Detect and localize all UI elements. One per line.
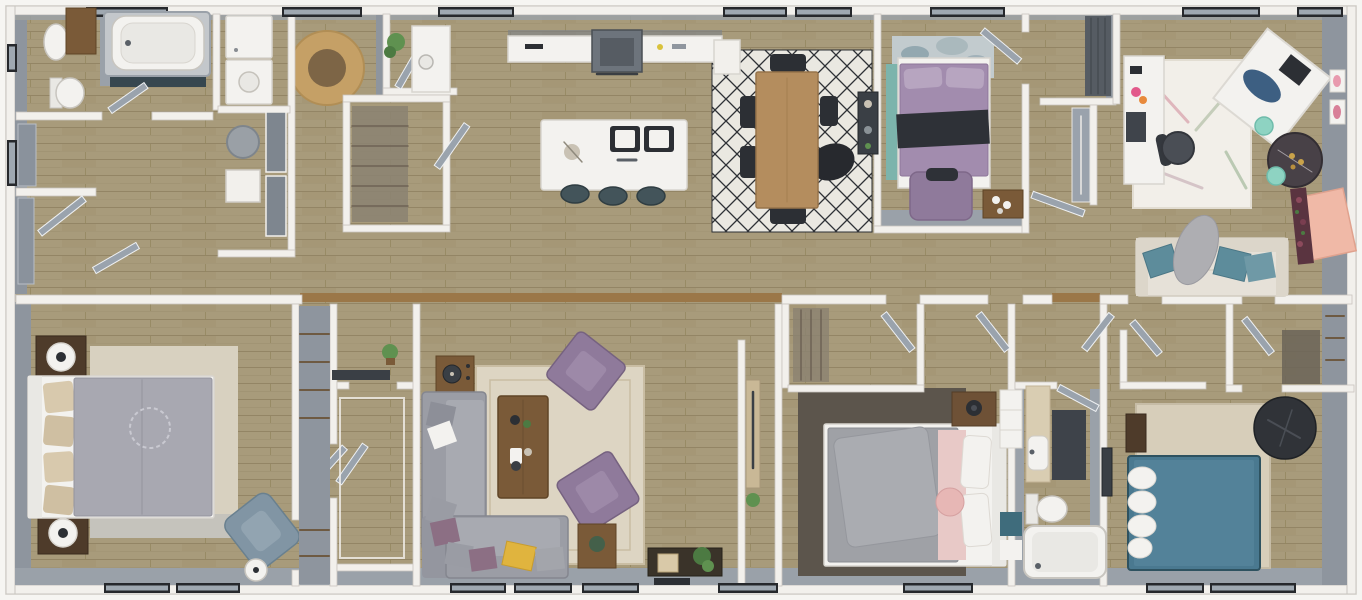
console-decor-1 bbox=[864, 100, 872, 108]
bed4-pillow-1 bbox=[1128, 467, 1156, 489]
bath2-toilet-bowl bbox=[1037, 496, 1067, 522]
toilet-bowl bbox=[56, 78, 84, 108]
primary-headboard bbox=[28, 376, 42, 518]
office-sofa-arm-right bbox=[1276, 238, 1288, 296]
counter-item-gray bbox=[672, 44, 686, 49]
interior-wall-27 bbox=[1275, 295, 1352, 304]
washer-controls bbox=[234, 48, 238, 52]
bean-bag bbox=[1254, 397, 1316, 459]
teal-towels bbox=[1000, 512, 1022, 536]
window-glass-bottom-2 bbox=[178, 586, 238, 591]
bathroom2-mat bbox=[1052, 410, 1086, 480]
interior-wall-25 bbox=[1100, 295, 1128, 304]
interior-wall-37 bbox=[775, 304, 782, 586]
floor-plan-svg bbox=[0, 0, 1362, 600]
interior-wall-35 bbox=[413, 304, 420, 586]
primary-pillow-3 bbox=[43, 451, 75, 483]
bed3-lamp-center bbox=[971, 405, 977, 411]
interior-wall-40 bbox=[788, 385, 924, 392]
media-plant-2 bbox=[702, 560, 714, 572]
garland-bloom-2 bbox=[1300, 219, 1306, 225]
bed2-side-table bbox=[983, 190, 1023, 218]
end-cabinet bbox=[714, 40, 740, 74]
coffee-table-decor-1 bbox=[510, 415, 520, 425]
mint-pouf-1 bbox=[1255, 117, 1273, 135]
interior-wall-34 bbox=[337, 564, 420, 571]
window-glass-bottom-6 bbox=[720, 586, 776, 591]
bed4-pillow-3 bbox=[1128, 515, 1156, 537]
sofa-teal-pillow-3 bbox=[1244, 252, 1276, 282]
garland-leaf-1 bbox=[1295, 210, 1299, 214]
window-glass-bottom-3 bbox=[452, 586, 504, 591]
interior-wall-12 bbox=[343, 102, 350, 225]
bedroom2-rug-blotch-2 bbox=[936, 37, 968, 55]
desk-item-dark bbox=[1130, 66, 1142, 74]
interior-wall-2 bbox=[16, 112, 102, 120]
interior-wall-1 bbox=[213, 14, 220, 110]
white-towels bbox=[1000, 540, 1022, 560]
marriage-line bbox=[300, 293, 782, 302]
turntable-center bbox=[450, 372, 454, 376]
interior-wall-4 bbox=[16, 188, 96, 196]
lamp-top-center bbox=[56, 352, 66, 362]
bed2-table-dish-2 bbox=[1003, 201, 1011, 209]
bar-stool-2 bbox=[599, 187, 627, 205]
primary-closet-shelves bbox=[299, 306, 330, 584]
garland-leaf-2 bbox=[1301, 231, 1305, 235]
interior-wall-3 bbox=[152, 112, 213, 120]
coffee-table-plant bbox=[523, 420, 531, 428]
console-plant bbox=[865, 143, 871, 149]
hallway-plant bbox=[746, 493, 760, 507]
bath2-tub-faucet bbox=[1035, 563, 1041, 569]
interior-wall-31 bbox=[330, 498, 337, 586]
window-glass-top-6 bbox=[932, 10, 1003, 15]
vanity-cabinet bbox=[66, 8, 96, 54]
dryer-door bbox=[239, 72, 259, 92]
window-glass-top-4 bbox=[725, 10, 785, 15]
counter-item-yellow bbox=[657, 44, 663, 50]
table-gold-dot-3 bbox=[1291, 165, 1296, 170]
bed2-teal-runner bbox=[886, 64, 898, 180]
bath2-faucet bbox=[1030, 450, 1035, 455]
louver-door-2 bbox=[266, 176, 286, 236]
interior-wall-47 bbox=[1226, 385, 1242, 392]
floor-plan bbox=[0, 0, 1362, 600]
bed4-nightstand bbox=[1126, 414, 1146, 452]
desk-item-orange bbox=[1139, 96, 1147, 104]
linen-tower bbox=[1000, 390, 1022, 448]
bath2-tub-basin bbox=[1032, 532, 1098, 572]
lamp-bottom-center bbox=[58, 528, 68, 538]
interior-wall-19 bbox=[1090, 105, 1097, 205]
bed2-pillow-1 bbox=[903, 67, 942, 90]
bed4-closet-interior bbox=[1282, 330, 1320, 384]
interior-wall-29 bbox=[292, 570, 299, 586]
interior-wall-18 bbox=[1040, 98, 1116, 105]
bed2-pillow-2 bbox=[946, 67, 985, 89]
interior-wall-16 bbox=[1022, 14, 1029, 32]
window-glass-bottom-1 bbox=[106, 586, 168, 591]
table-gold-dot-1 bbox=[1289, 153, 1295, 159]
tub-faucet bbox=[125, 40, 131, 46]
interior-wall-10 bbox=[343, 95, 450, 102]
wall-art-2-print bbox=[1333, 105, 1341, 119]
bed3-round-pink-pillow bbox=[936, 488, 964, 516]
console-knob-1 bbox=[466, 364, 470, 368]
bar-stool-1 bbox=[561, 185, 589, 203]
media-bench bbox=[654, 578, 690, 585]
interior-wall-23 bbox=[920, 295, 988, 304]
mint-pouf-2 bbox=[1267, 167, 1285, 185]
bed3-big-gray-pillow bbox=[833, 426, 942, 548]
primary-pillow-4 bbox=[43, 485, 76, 516]
window-glass-top-8 bbox=[1299, 10, 1341, 15]
office-sofa-arm-left bbox=[1136, 238, 1148, 296]
window-glass-bottom-4 bbox=[516, 586, 570, 591]
interior-wall-32 bbox=[337, 382, 349, 389]
nook-plant bbox=[382, 344, 398, 360]
bed4-pillow-2 bbox=[1128, 491, 1156, 513]
media-console-frame bbox=[658, 554, 678, 572]
window-glass-bottom-8 bbox=[1148, 586, 1202, 591]
knife-block bbox=[525, 44, 543, 49]
wall-art-1-print bbox=[1333, 75, 1341, 87]
coffee-table-decor-2 bbox=[524, 448, 532, 456]
window-glass-bottom-7 bbox=[905, 586, 971, 591]
desk-item-pink bbox=[1131, 87, 1141, 97]
furnace bbox=[226, 170, 260, 202]
bed3-white-pillow-1 bbox=[960, 435, 992, 489]
pedestal-sink bbox=[44, 24, 68, 60]
console-knob-2 bbox=[466, 376, 470, 380]
garland-bloom-1 bbox=[1296, 197, 1302, 203]
window-glass-top-7 bbox=[1184, 10, 1258, 15]
interior-wall-28 bbox=[292, 304, 299, 520]
window-glass-top-3 bbox=[440, 10, 512, 15]
interior-wall-24 bbox=[1023, 295, 1052, 304]
washer bbox=[226, 16, 272, 58]
wardrobe-1 bbox=[18, 124, 36, 186]
interior-wall-11 bbox=[343, 225, 450, 232]
wardrobe-2 bbox=[18, 198, 34, 284]
interior-wall-5 bbox=[288, 14, 295, 257]
primary-side-table-center bbox=[253, 567, 259, 573]
interior-wall-36 bbox=[738, 340, 745, 586]
marriage-line-right bbox=[1052, 293, 1100, 302]
pantry-shelving bbox=[352, 106, 408, 222]
entry-jute-rug-center bbox=[308, 49, 346, 87]
nook-console bbox=[332, 370, 390, 380]
side-table-planter bbox=[589, 536, 605, 552]
nook-plant-pot bbox=[386, 358, 395, 365]
powder-wall-face bbox=[376, 15, 383, 95]
exterior-wall-left bbox=[6, 6, 15, 594]
window-glass-top-2 bbox=[284, 10, 360, 15]
interior-wall-38 bbox=[782, 304, 789, 388]
interior-wall-21 bbox=[16, 295, 302, 304]
window-glass-top-5 bbox=[797, 10, 850, 15]
bath2-wall-mirror bbox=[1102, 448, 1112, 496]
interior-wall-22 bbox=[782, 295, 886, 304]
bed2-black-throw bbox=[896, 110, 990, 149]
interior-wall-44 bbox=[1120, 330, 1127, 386]
sofa-pillow-plaid-2 bbox=[444, 542, 473, 568]
powder-basin bbox=[419, 55, 433, 69]
primary-pillow-2 bbox=[43, 415, 76, 448]
interior-wall-45 bbox=[1120, 382, 1206, 389]
bed2-table-dish-3 bbox=[997, 208, 1003, 214]
floor-plan-scene bbox=[0, 0, 1362, 600]
table-gold-dot-2 bbox=[1298, 159, 1304, 165]
interior-wall-20 bbox=[1113, 14, 1120, 104]
bed2-foot-chair-cushion bbox=[926, 168, 958, 181]
bed2-table-dish-1 bbox=[992, 196, 1000, 204]
powder-plant-2 bbox=[384, 46, 396, 58]
dining-chair-right-1 bbox=[820, 96, 838, 126]
window-glass-left-1 bbox=[9, 47, 15, 70]
console-decor-2 bbox=[864, 126, 872, 134]
bath2-toilet-tank bbox=[1026, 494, 1038, 524]
bed3-white-pillow-2 bbox=[960, 493, 992, 547]
primary-pillow-1 bbox=[43, 381, 76, 414]
window-glass-bottom-9 bbox=[1212, 586, 1294, 591]
window-glass-left-2 bbox=[9, 143, 15, 184]
bathtub-basin bbox=[121, 23, 195, 63]
coffee-table-decor-3 bbox=[511, 461, 521, 471]
window-glass-bottom-5 bbox=[584, 586, 637, 591]
bed4-pillow-4 bbox=[1128, 538, 1152, 558]
garland-bloom-3 bbox=[1297, 241, 1303, 247]
island-sink-right-basin bbox=[649, 130, 669, 148]
interior-wall-7 bbox=[218, 250, 295, 257]
louver-door-1 bbox=[266, 112, 286, 172]
bar-stool-3 bbox=[637, 187, 665, 205]
interior-wall-39 bbox=[917, 304, 924, 388]
interior-wall-48 bbox=[1282, 385, 1354, 392]
dining-chair-top bbox=[770, 54, 806, 72]
water-heater bbox=[227, 126, 259, 158]
island-sink-left-basin bbox=[615, 130, 635, 148]
desk-monitor bbox=[1126, 112, 1146, 142]
range-top bbox=[600, 38, 634, 66]
interior-wall-15 bbox=[874, 226, 1029, 233]
interior-wall-46 bbox=[1226, 304, 1233, 388]
sofa-pillow-plaid-3 bbox=[535, 547, 565, 572]
sofa-pillow-plum-2 bbox=[469, 546, 498, 571]
office-chair bbox=[1162, 132, 1194, 164]
